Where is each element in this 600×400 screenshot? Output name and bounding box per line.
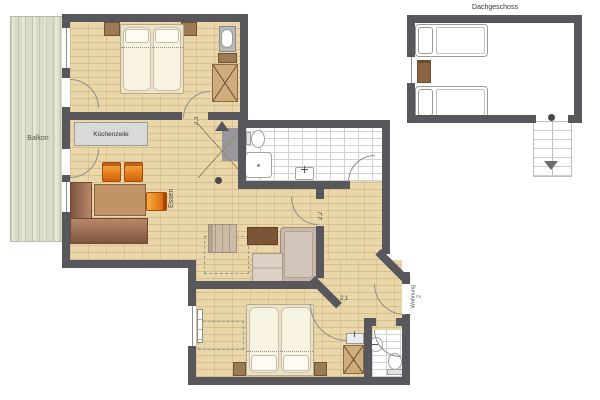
washstand-basin — [221, 29, 233, 48]
dining-chair-3 — [146, 192, 167, 211]
headboard-shelf-left — [104, 22, 120, 36]
attic-wall-right — [574, 15, 582, 123]
apartment-label: Wohnung 2 — [411, 279, 424, 315]
single-bed-1-pillow — [418, 27, 433, 54]
wall-wc-top-stub-a — [364, 318, 376, 326]
bed-fold-line — [121, 47, 183, 48]
corner-bench-horizontal — [70, 218, 148, 244]
wall-left-1 — [62, 14, 70, 28]
radiator — [197, 309, 203, 343]
attic-wall-bottom-b — [568, 115, 582, 123]
roof-slope-dashed — [198, 321, 244, 350]
attic-label: Dachgeschoss — [445, 3, 545, 12]
attic-wall-left-a — [407, 15, 415, 57]
height-label-bedroom1: 2,3 — [193, 105, 202, 125]
wall-right-upper — [382, 120, 390, 254]
kitchenette-label: Küchenzeile — [93, 131, 128, 138]
wall-bathroom-top — [240, 120, 390, 128]
wall-bedroom1-right — [240, 14, 248, 128]
balcony-door-bedroom1 — [62, 78, 70, 107]
stairs-up-arrow — [215, 121, 229, 131]
pillow-left — [125, 29, 149, 43]
window-living — [62, 182, 70, 212]
wall-wc-top-stub-b — [396, 318, 406, 326]
wall-bedroom1-bottom-a — [62, 112, 182, 120]
balcony-deck — [10, 16, 68, 242]
wc-toilet-tank — [387, 369, 403, 375]
wall-bathroom-left — [238, 120, 246, 189]
dining-chair-1 — [102, 162, 121, 182]
wall-right-lower-a — [402, 272, 410, 284]
attic-stair-post — [548, 114, 555, 121]
attic-wall-left-b — [407, 83, 415, 115]
tv-board — [247, 227, 278, 245]
stair-post — [215, 177, 222, 184]
pillow-right — [155, 29, 179, 43]
wall-bottom — [188, 377, 410, 385]
bedroom2-basin-tap — [354, 331, 355, 337]
apartment-number: 2 — [417, 279, 423, 315]
shower-drain — [257, 164, 260, 167]
armchair — [208, 224, 237, 253]
kitchenette-counter: Küchenzeile — [74, 122, 148, 146]
single-bed-2-pillow — [418, 89, 433, 116]
bath-sink-tap-bar — [301, 169, 308, 170]
wall-wc-left — [364, 318, 372, 384]
wall-left-4 — [62, 175, 70, 182]
wardrobe-bedroom2 — [343, 345, 364, 374]
wall-hall-living — [316, 226, 324, 278]
wall-left-2 — [62, 68, 70, 78]
toilet-bath — [251, 130, 265, 148]
height-label-hall-lower: 2,1 — [340, 295, 348, 304]
attic-window — [407, 57, 415, 83]
floor-plan: Balkon Küchenzeile Essen — [0, 0, 600, 400]
single-bed-1-mattress — [436, 27, 485, 54]
wall-top — [62, 14, 248, 22]
wall-bathroom-bottom — [238, 181, 350, 189]
pillow2-right — [283, 355, 309, 371]
wall-bedroom2-top — [188, 281, 318, 289]
side-shelf — [218, 53, 237, 63]
sofa-chaise-cushion — [284, 231, 313, 278]
sofa-seat — [252, 253, 283, 283]
nightstand-right — [314, 362, 327, 376]
wall-bedroom1-bottom-b — [208, 112, 240, 120]
height-label-hall-upper: 2,2 — [317, 200, 326, 220]
wall-living-bottom — [62, 260, 196, 268]
single-bed-2-mattress — [436, 89, 485, 116]
pillow2-left — [251, 355, 277, 371]
attic-wall-top — [407, 15, 582, 23]
bed2-fold-line — [247, 351, 313, 352]
nightstand-left — [233, 362, 246, 376]
dining-table — [94, 184, 146, 216]
window-bedroom1 — [62, 28, 70, 68]
balcony-door-dining — [62, 149, 70, 175]
stairs-down-arrow — [544, 161, 558, 170]
wall-left-5 — [62, 212, 70, 268]
wardrobe-bedroom-top — [212, 64, 238, 102]
balcony-label: Balkon — [12, 134, 64, 143]
bedroom2-washbasin — [346, 333, 364, 344]
dining-chair-2 — [124, 162, 143, 182]
window-bedroom2 — [188, 306, 196, 346]
attic-dresser — [417, 60, 431, 83]
attic-wall-bottom-a — [407, 115, 536, 123]
dining-label: Essen — [167, 160, 176, 208]
